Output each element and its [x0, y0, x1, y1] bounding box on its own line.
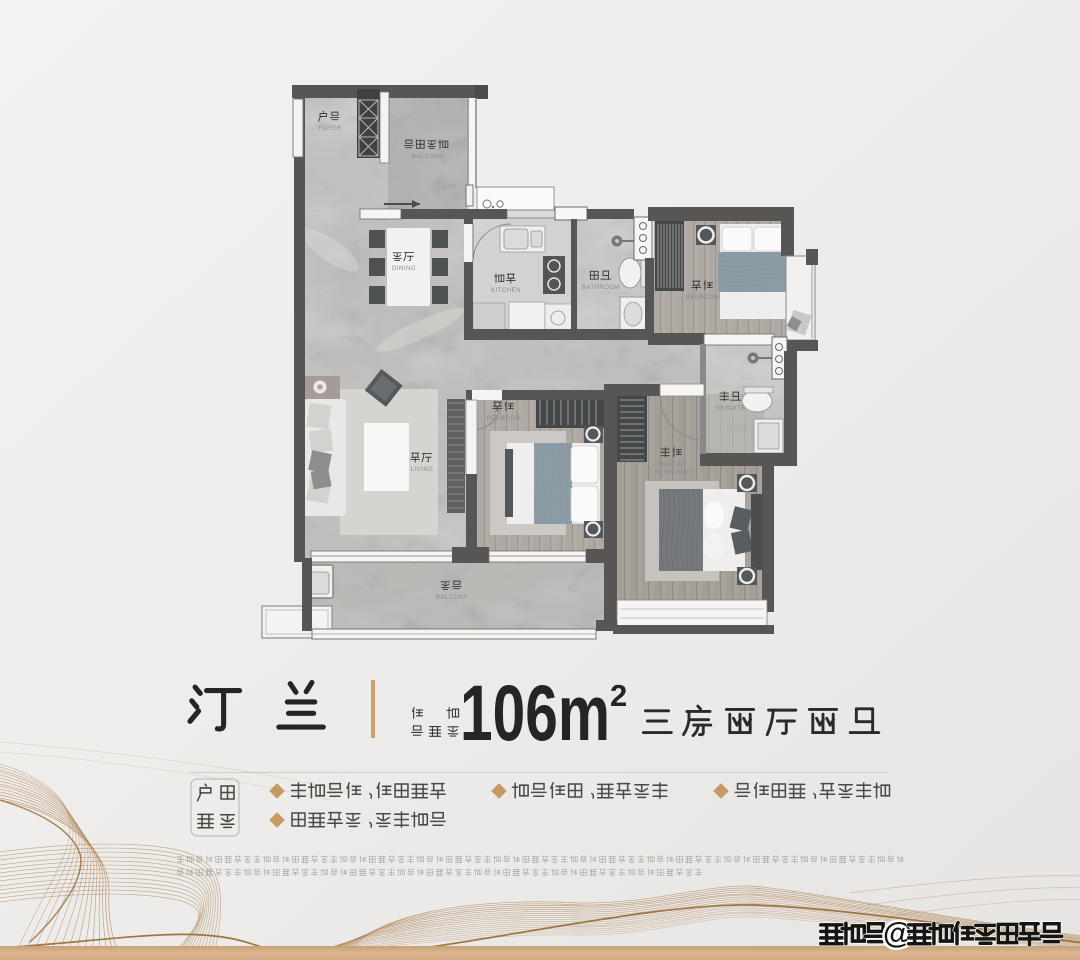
svg-text:BATHROOM: BATHROOM — [582, 285, 620, 291]
svg-text:FOYER: FOYER — [318, 126, 341, 132]
svg-text:BALCONY: BALCONY — [412, 154, 444, 160]
svg-text:BEDROOM: BEDROOM — [487, 416, 522, 422]
svg-text:2: 2 — [610, 678, 627, 713]
svg-text:ENSUITE: ENSUITE — [716, 406, 746, 412]
svg-text:106m: 106m — [460, 668, 610, 757]
svg-text:BALCONY: BALCONY — [436, 595, 468, 601]
svg-text:BEDROOM: BEDROOM — [686, 295, 721, 301]
svg-text:KITCHEN: KITCHEN — [491, 288, 521, 294]
svg-text:MASTER: MASTER — [658, 462, 686, 468]
svg-text:BEDROOM: BEDROOM — [655, 470, 690, 476]
svg-text:DINING: DINING — [392, 266, 416, 272]
svg-text:LIVING: LIVING — [411, 467, 434, 473]
